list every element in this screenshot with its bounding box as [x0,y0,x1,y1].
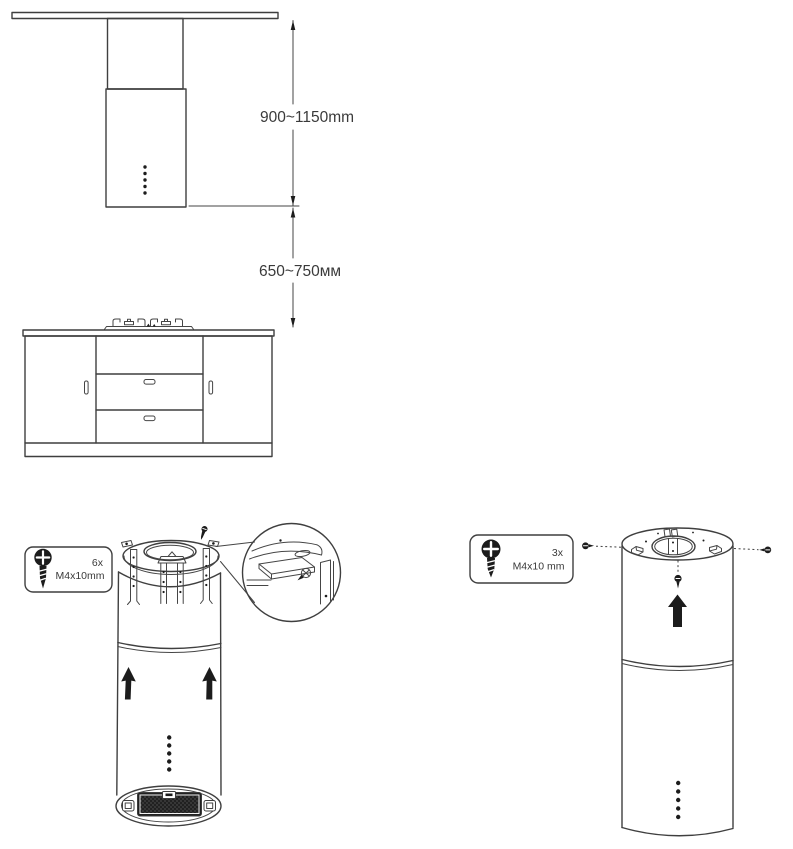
ceiling [12,13,278,19]
arrow-up-icon [291,208,296,218]
drawer-handle-bottom [144,416,155,421]
hood-side-view [106,19,186,208]
screw-icon [674,575,681,589]
left-door-handle [85,381,89,394]
bracket-detail-view [247,539,334,604]
body-seam [118,643,221,649]
gas-burner-left [113,319,145,327]
hood-with-mounting-bracket [116,525,221,826]
control-dots [676,781,680,819]
dimension-ceiling-to-hood: 900~1150mm [189,21,354,207]
dimension-hood-to-cooktop: 650~750мм [259,208,341,328]
screw-quantity: 6x [92,557,104,569]
countertop [23,330,274,336]
hood-chimney [108,19,184,90]
screw-quantity: 3x [552,547,564,559]
arrow-up-icon [291,21,296,31]
cabinet-body [25,336,272,457]
screw-insert-center [674,561,681,589]
screw-insert-left [582,542,621,549]
screw-icon [759,547,771,554]
arrow-down-icon [291,318,296,328]
drawer-handle-top [144,380,155,385]
hood-cylinder [622,528,733,836]
height-installation-diagram: 900~1150mm 650~750мм [0,0,793,470]
screw-insert-right [734,547,771,554]
screw-spec-box: 3x M4x10 mm [470,535,573,583]
filter-handle [163,792,176,799]
control-dots [167,735,171,771]
screw-icon [482,540,501,578]
mounting-clips [632,529,722,555]
up-arrow-icon [668,595,687,628]
body-seam [622,660,733,667]
duct-opening [652,536,695,557]
right-door-handle [209,381,213,394]
dimension-label-bottom: 650~750мм [259,263,341,280]
detail-circle [216,524,341,622]
control-dots [143,165,146,194]
filter-latch-right [204,801,216,812]
hood-body [106,89,186,207]
screw-icon [198,525,208,541]
kitchen-cabinet [23,330,274,457]
hood-bottom [116,786,221,826]
gas-burner-right [151,319,183,327]
screw-size: M4x10mm [55,570,104,582]
arrow-down-icon [291,196,296,206]
screw-size: M4x10 mm [513,561,565,573]
screw-icon [582,542,594,549]
installation-manual-page: 900~1150mm 650~750мм [0,0,793,849]
filter-latch-left [123,801,135,812]
dimension-label-top: 900~1150mm [260,109,354,126]
screw-spec-box: 6x M4x10mm [25,547,112,592]
bottom-rim [622,828,733,836]
bracket-rails [128,549,213,605]
ceiling-flange [122,541,220,575]
hood-mount-step: 3x M4x10 mm [450,500,793,849]
screw-icon [34,549,51,589]
cooktop [104,319,194,330]
up-arrow-icon [121,667,217,700]
bracket-assembly-step: 6x M4x10mm [0,500,450,849]
